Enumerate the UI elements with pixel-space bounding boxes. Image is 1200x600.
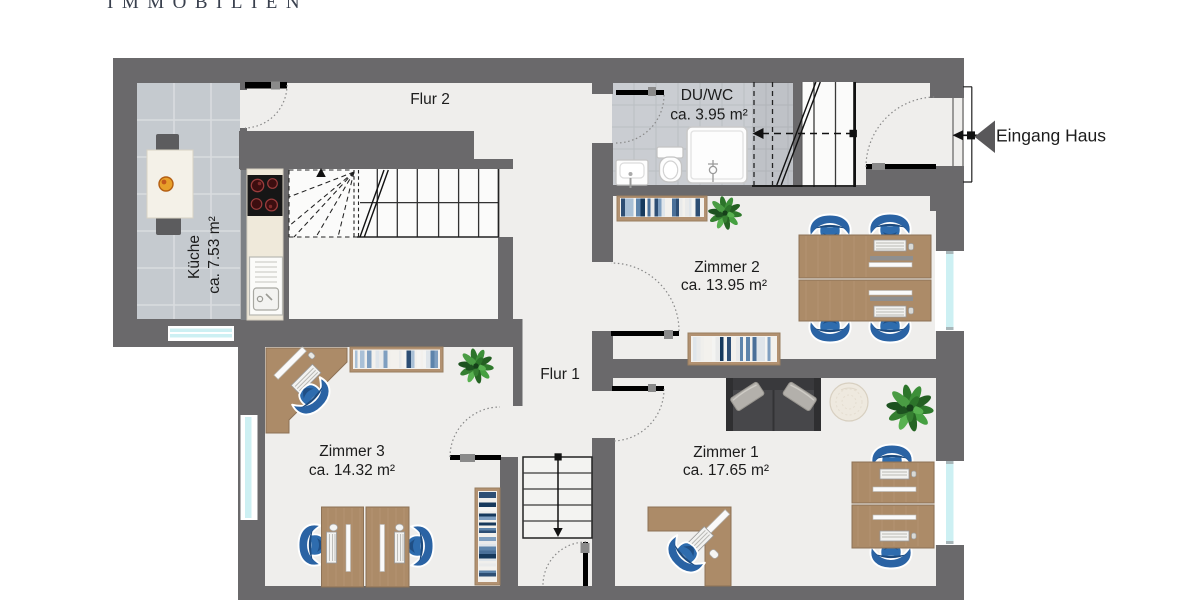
svg-text:DU/WC: DU/WC xyxy=(681,87,734,104)
svg-text:ca. 7.53 m²: ca. 7.53 m² xyxy=(206,216,223,294)
svg-text:ca. 14.32 m²: ca. 14.32 m² xyxy=(309,462,395,479)
svg-text:Flur 1: Flur 1 xyxy=(540,366,580,383)
svg-text:IMMOBILIEN: IMMOBILIEN xyxy=(107,0,308,13)
svg-text:Zimmer 1: Zimmer 1 xyxy=(693,444,758,461)
svg-text:Zimmer 3: Zimmer 3 xyxy=(319,443,384,460)
svg-text:ca. 17.65 m²: ca. 17.65 m² xyxy=(683,462,769,479)
svg-text:Eingang Haus: Eingang Haus xyxy=(996,126,1106,146)
svg-text:Küche: Küche xyxy=(186,235,203,279)
svg-text:ca. 3.95 m²: ca. 3.95 m² xyxy=(670,107,748,124)
svg-text:Zimmer 2: Zimmer 2 xyxy=(694,259,759,276)
svg-text:ca. 13.95 m²: ca. 13.95 m² xyxy=(681,277,767,294)
svg-text:Flur 2: Flur 2 xyxy=(410,91,450,108)
